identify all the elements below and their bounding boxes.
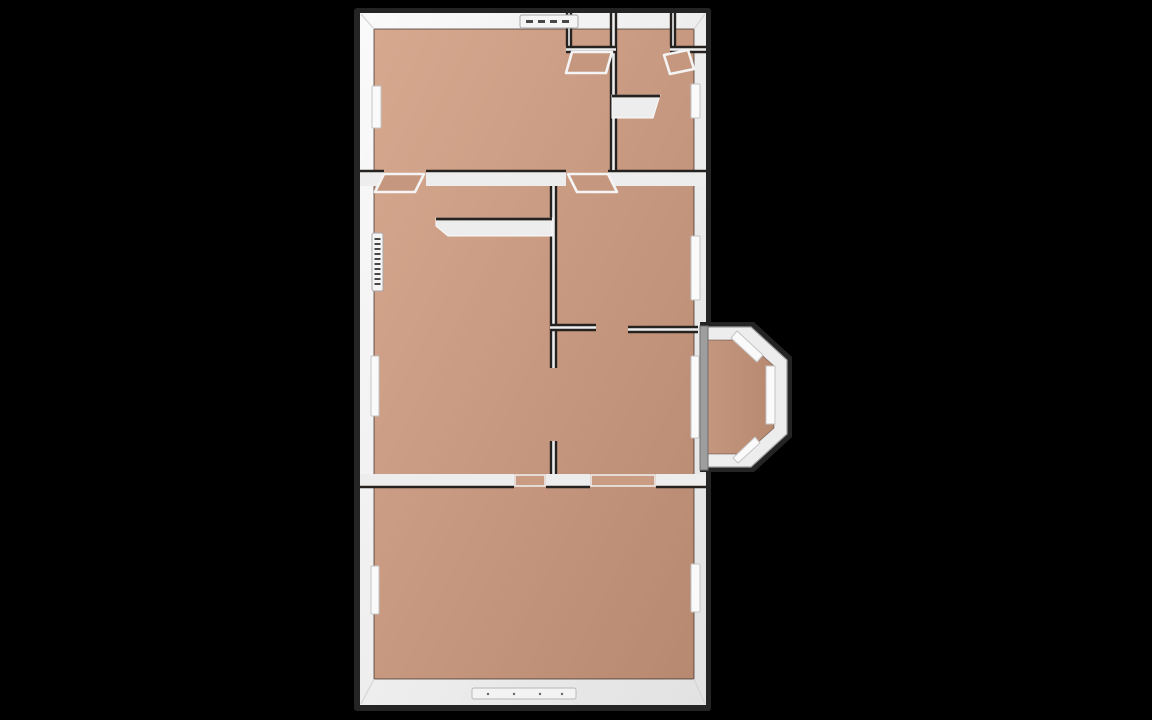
wall-top-divider-center bbox=[426, 170, 566, 186]
window-right-middle bbox=[691, 236, 700, 300]
window-left-middle bbox=[371, 356, 379, 416]
doorway-bottom-left bbox=[515, 475, 545, 486]
floorplan-svg bbox=[0, 0, 1152, 720]
bay-window-floor bbox=[703, 340, 774, 454]
window-left-bottom bbox=[371, 566, 379, 614]
sliding-door-track-dot-0 bbox=[487, 693, 489, 695]
right-wall-outer-face bbox=[700, 326, 708, 470]
doorway-bottom-right bbox=[591, 475, 655, 486]
radiator-left-wall bbox=[372, 233, 383, 291]
floorplan-render bbox=[0, 0, 1152, 720]
door-middle-bedroom bbox=[568, 174, 617, 192]
window-left-top bbox=[372, 86, 381, 128]
door-closet-left bbox=[566, 52, 612, 73]
window-right-bottom bbox=[691, 564, 700, 612]
building-floor bbox=[374, 29, 694, 679]
shelf-top-right-room bbox=[612, 95, 660, 118]
wall-top-divider-right bbox=[608, 170, 706, 186]
sliding-door-track-dot-2 bbox=[539, 693, 541, 695]
window-right-top bbox=[691, 84, 700, 118]
bay-window-right bbox=[766, 366, 775, 424]
door-closet-right bbox=[664, 50, 694, 74]
door-top-left-room bbox=[375, 174, 424, 192]
window-bay-inner bbox=[691, 356, 699, 438]
counter-half-wall bbox=[436, 218, 552, 236]
sliding-door-track-dot-1 bbox=[513, 693, 515, 695]
sliding-door-track-dot-3 bbox=[561, 693, 563, 695]
